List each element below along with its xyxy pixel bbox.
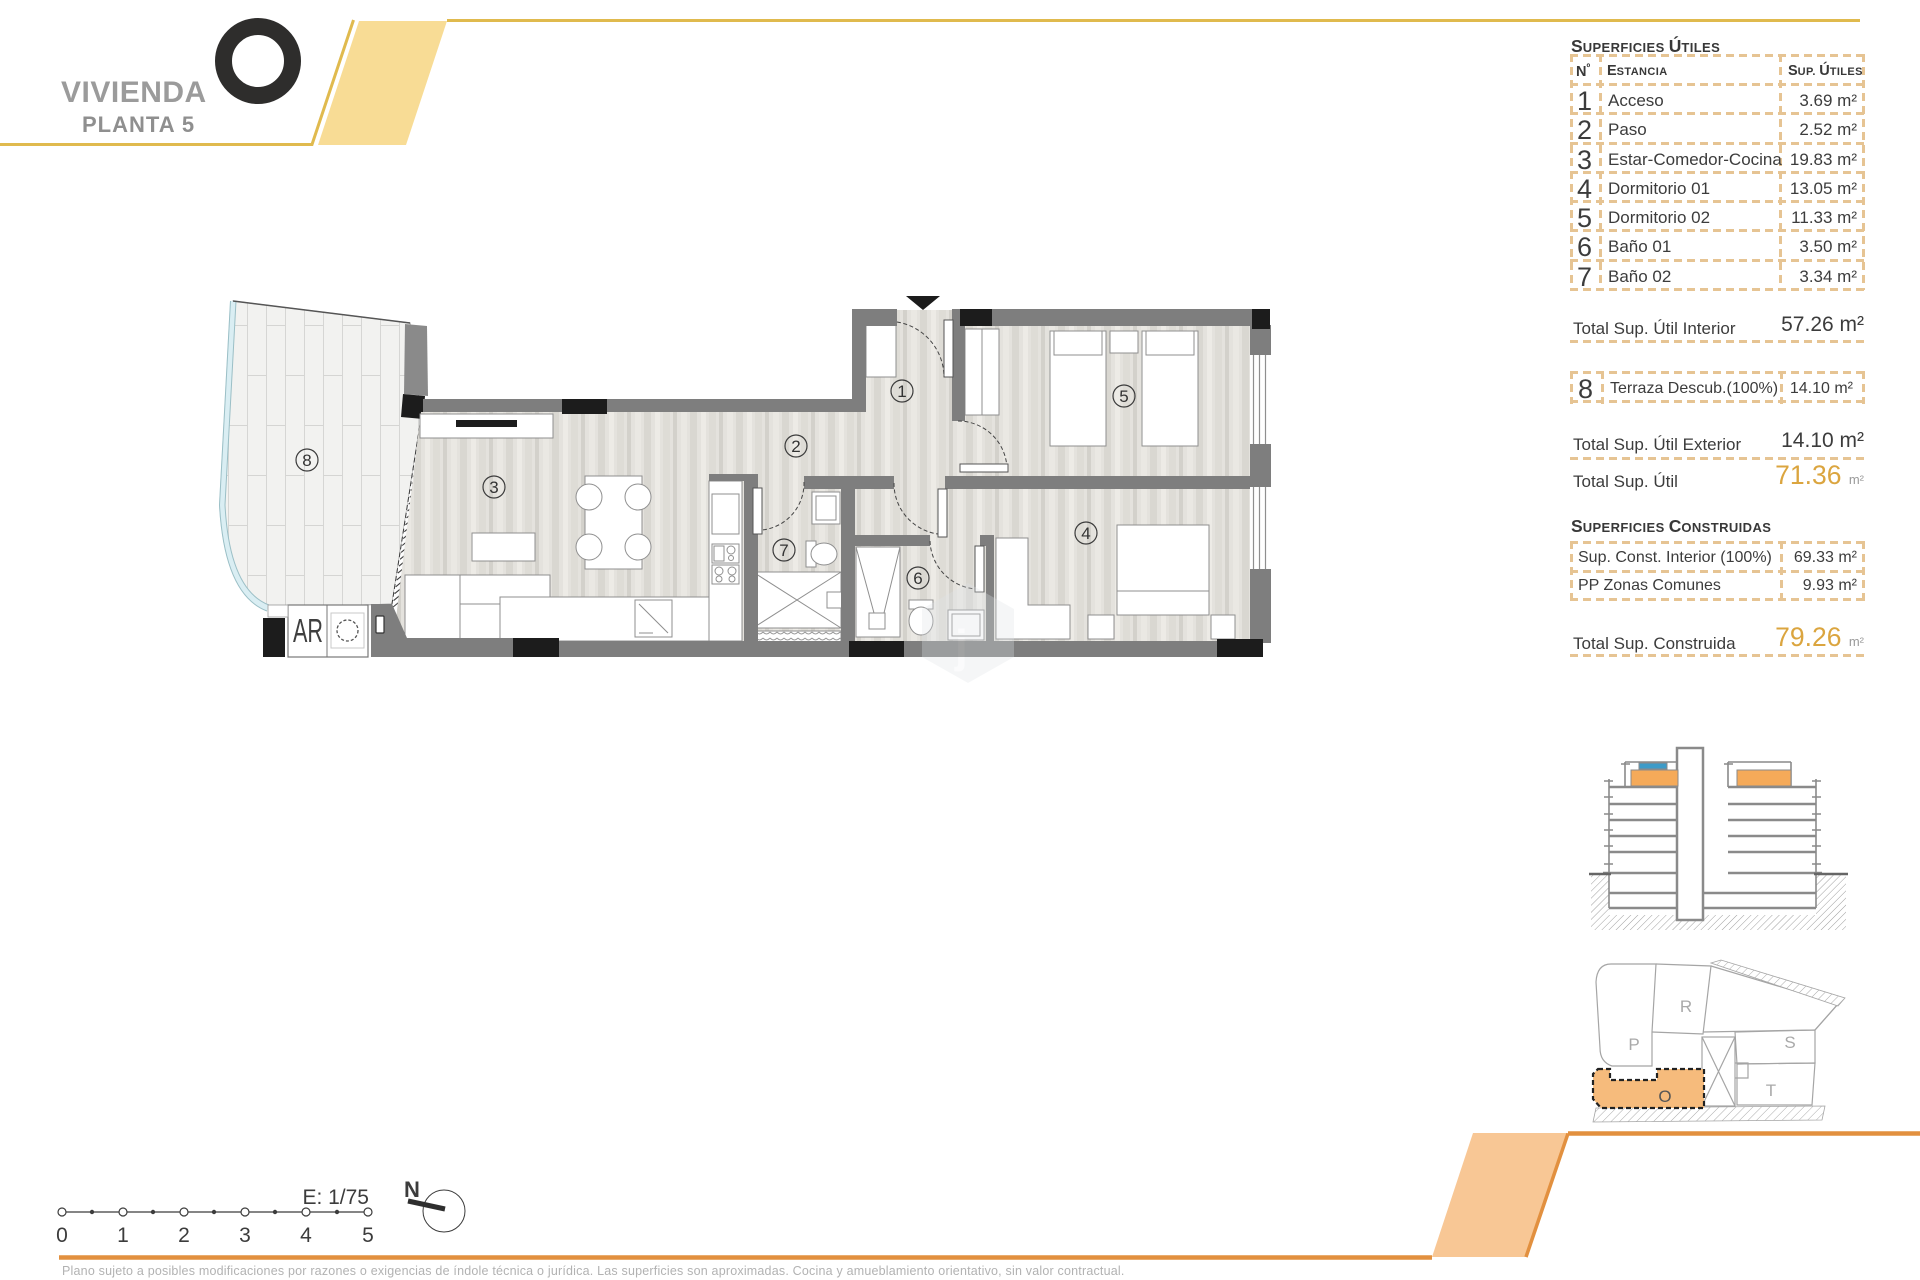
svg-text:2: 2: [178, 1224, 190, 1247]
svg-text:4: 4: [1081, 524, 1090, 543]
svg-text:1: 1: [117, 1224, 129, 1247]
svg-text:3: 3: [239, 1224, 251, 1247]
svg-text:5: 5: [362, 1224, 374, 1247]
svg-text:j: j: [954, 620, 968, 672]
svg-text:P: P: [1628, 1035, 1639, 1054]
svg-text:AR: AR: [293, 612, 323, 649]
svg-text:3: 3: [489, 478, 498, 497]
svg-text:4: 4: [300, 1224, 312, 1247]
svg-text:O: O: [1658, 1087, 1671, 1106]
svg-text:E: 1/75: E: 1/75: [302, 1186, 369, 1209]
svg-text:1: 1: [897, 382, 906, 401]
svg-text:6: 6: [913, 569, 922, 588]
svg-text:N: N: [404, 1177, 420, 1202]
svg-text:7: 7: [779, 541, 788, 560]
svg-text:0: 0: [56, 1224, 68, 1247]
svg-text:T: T: [1766, 1081, 1776, 1100]
svg-text:S: S: [1784, 1033, 1795, 1052]
svg-text:5: 5: [1119, 387, 1128, 406]
svg-text:2: 2: [791, 437, 800, 456]
svg-text:R: R: [1680, 997, 1692, 1016]
svg-text:8: 8: [302, 451, 311, 470]
